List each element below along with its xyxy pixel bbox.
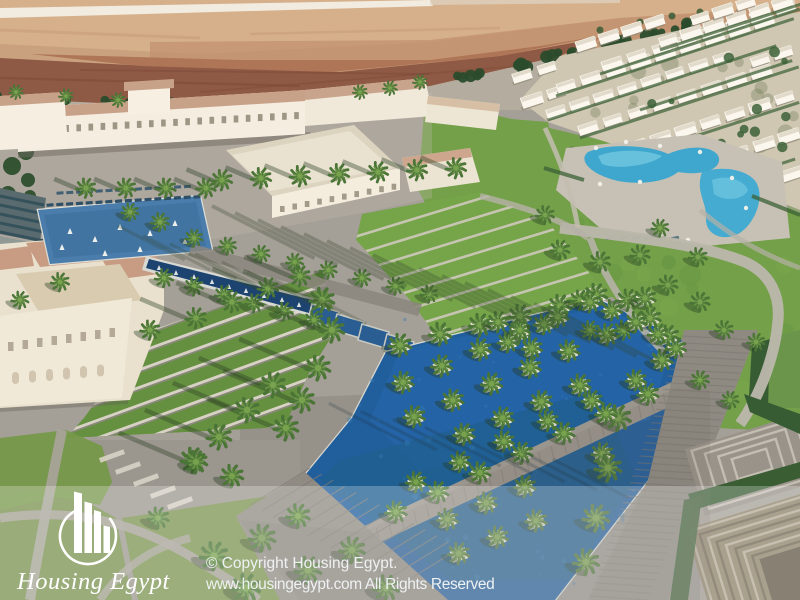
svg-text:© Copyright Housing Egypt.: © Copyright Housing Egypt.: [206, 555, 398, 572]
svg-text:Housing Egypt: Housing Egypt: [16, 568, 170, 595]
svg-text:www.housingegypt.com All Right: www.housingegypt.com All Rights Reserved: [205, 576, 494, 593]
